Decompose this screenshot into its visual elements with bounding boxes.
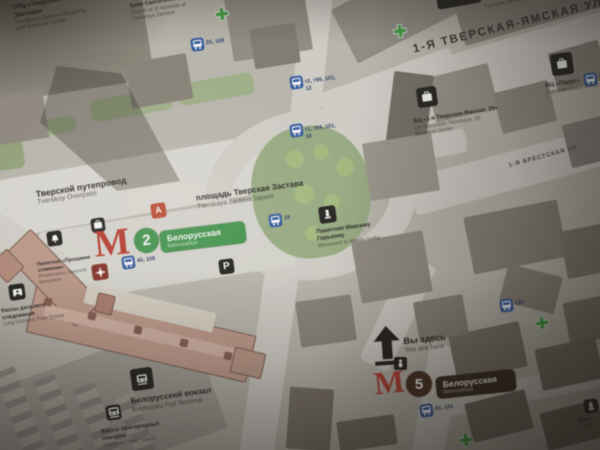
street-name-tverskaya-yamskaya: 1-Я ТВЕРСКАЯ-ЯМСКАЯ УЛ xyxy=(380,0,600,63)
you-are-here-stand-icon xyxy=(394,357,407,370)
street-name-brestskaya: 1-Я БРЕСТСКАЯ УЛ xyxy=(479,137,600,176)
parking-icon: P xyxy=(218,258,235,275)
metro-line2-circle: 2 xyxy=(133,227,160,254)
map-content: 20, 108т2, т56, 101,12т1, т54, 101,18184… xyxy=(0,0,600,450)
map-photo: 20, 108т2, т56, 101,12т1, т54, 101,18184… xyxy=(0,0,600,450)
metro-m-logo-line2: М xyxy=(92,222,132,264)
metro-station-badge-line2: Белорусская Belorusskaya xyxy=(159,221,247,254)
metro-station-badge-line5: Белорусская Belorusskaya xyxy=(435,369,517,399)
map-static-labels: 1-Я ТВЕРСКАЯ-ЯМСКАЯ УЛ 1-Я БРЕСТСКАЯ УЛ … xyxy=(0,0,600,450)
metro-line5-circle: 5 xyxy=(406,371,432,397)
you-are-here-label: Вы здесь You are here xyxy=(403,332,447,356)
